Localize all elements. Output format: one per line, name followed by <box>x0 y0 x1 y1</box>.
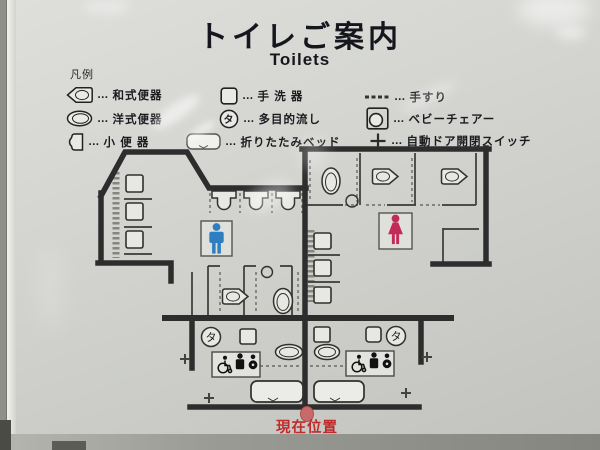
hand-wash-basin-icon <box>366 327 381 342</box>
urinal-icon <box>212 191 236 210</box>
auto-door-switch-icon <box>401 388 411 398</box>
hand-wash-basin-icon <box>314 233 331 249</box>
western-toilet-icon <box>274 289 293 314</box>
hand-wash-basin-icon <box>126 175 143 192</box>
svg-text:タ: タ <box>206 331 217 344</box>
toilet-guide-sign-photo: トイレご案内 Toilets 凡例 … 和式便器 … 洋式便器 … 小 便 器 … <box>0 0 600 450</box>
auto-door-switch-icon <box>180 354 190 364</box>
western-toilet-icon <box>322 168 340 194</box>
hand-wash-basin-icon <box>314 260 331 276</box>
hand-wash-basin-icon <box>314 287 331 303</box>
mens-room <box>126 175 300 314</box>
squat-toilet-icon <box>373 169 399 184</box>
urinal-icon <box>276 191 300 210</box>
folding-bed-icon <box>314 381 364 402</box>
accessibility-box <box>346 351 394 376</box>
auto-door-switch-icon <box>204 393 214 403</box>
hand-wash-basin-icon <box>126 231 143 248</box>
western-toilet-icon <box>315 345 340 360</box>
floor-drain-icon <box>262 267 273 278</box>
womens-symbol-box <box>379 213 412 249</box>
multipurpose-sink-icon: タ <box>387 327 406 346</box>
hand-wash-basin-icon <box>240 329 256 344</box>
mens-symbol-box <box>201 221 232 256</box>
current-location: 現在位置 <box>276 407 338 437</box>
western-toilet-icon <box>276 345 303 360</box>
squat-toilet-icon <box>442 169 468 184</box>
accessibility-box <box>212 352 260 377</box>
multipurpose-sink-icon: タ <box>202 328 221 347</box>
svg-text:タ: タ <box>391 330 402 343</box>
floor-plan-walls <box>98 148 489 407</box>
partition-walls <box>124 153 479 316</box>
hand-wash-basin-icon <box>314 327 330 342</box>
urinal-icon <box>244 191 268 210</box>
hand-wash-basin-icon <box>126 203 143 220</box>
folding-bed-icon <box>251 381 303 402</box>
current-location-label: 現在位置 <box>276 418 338 436</box>
floor-plan: タ <box>0 0 600 450</box>
